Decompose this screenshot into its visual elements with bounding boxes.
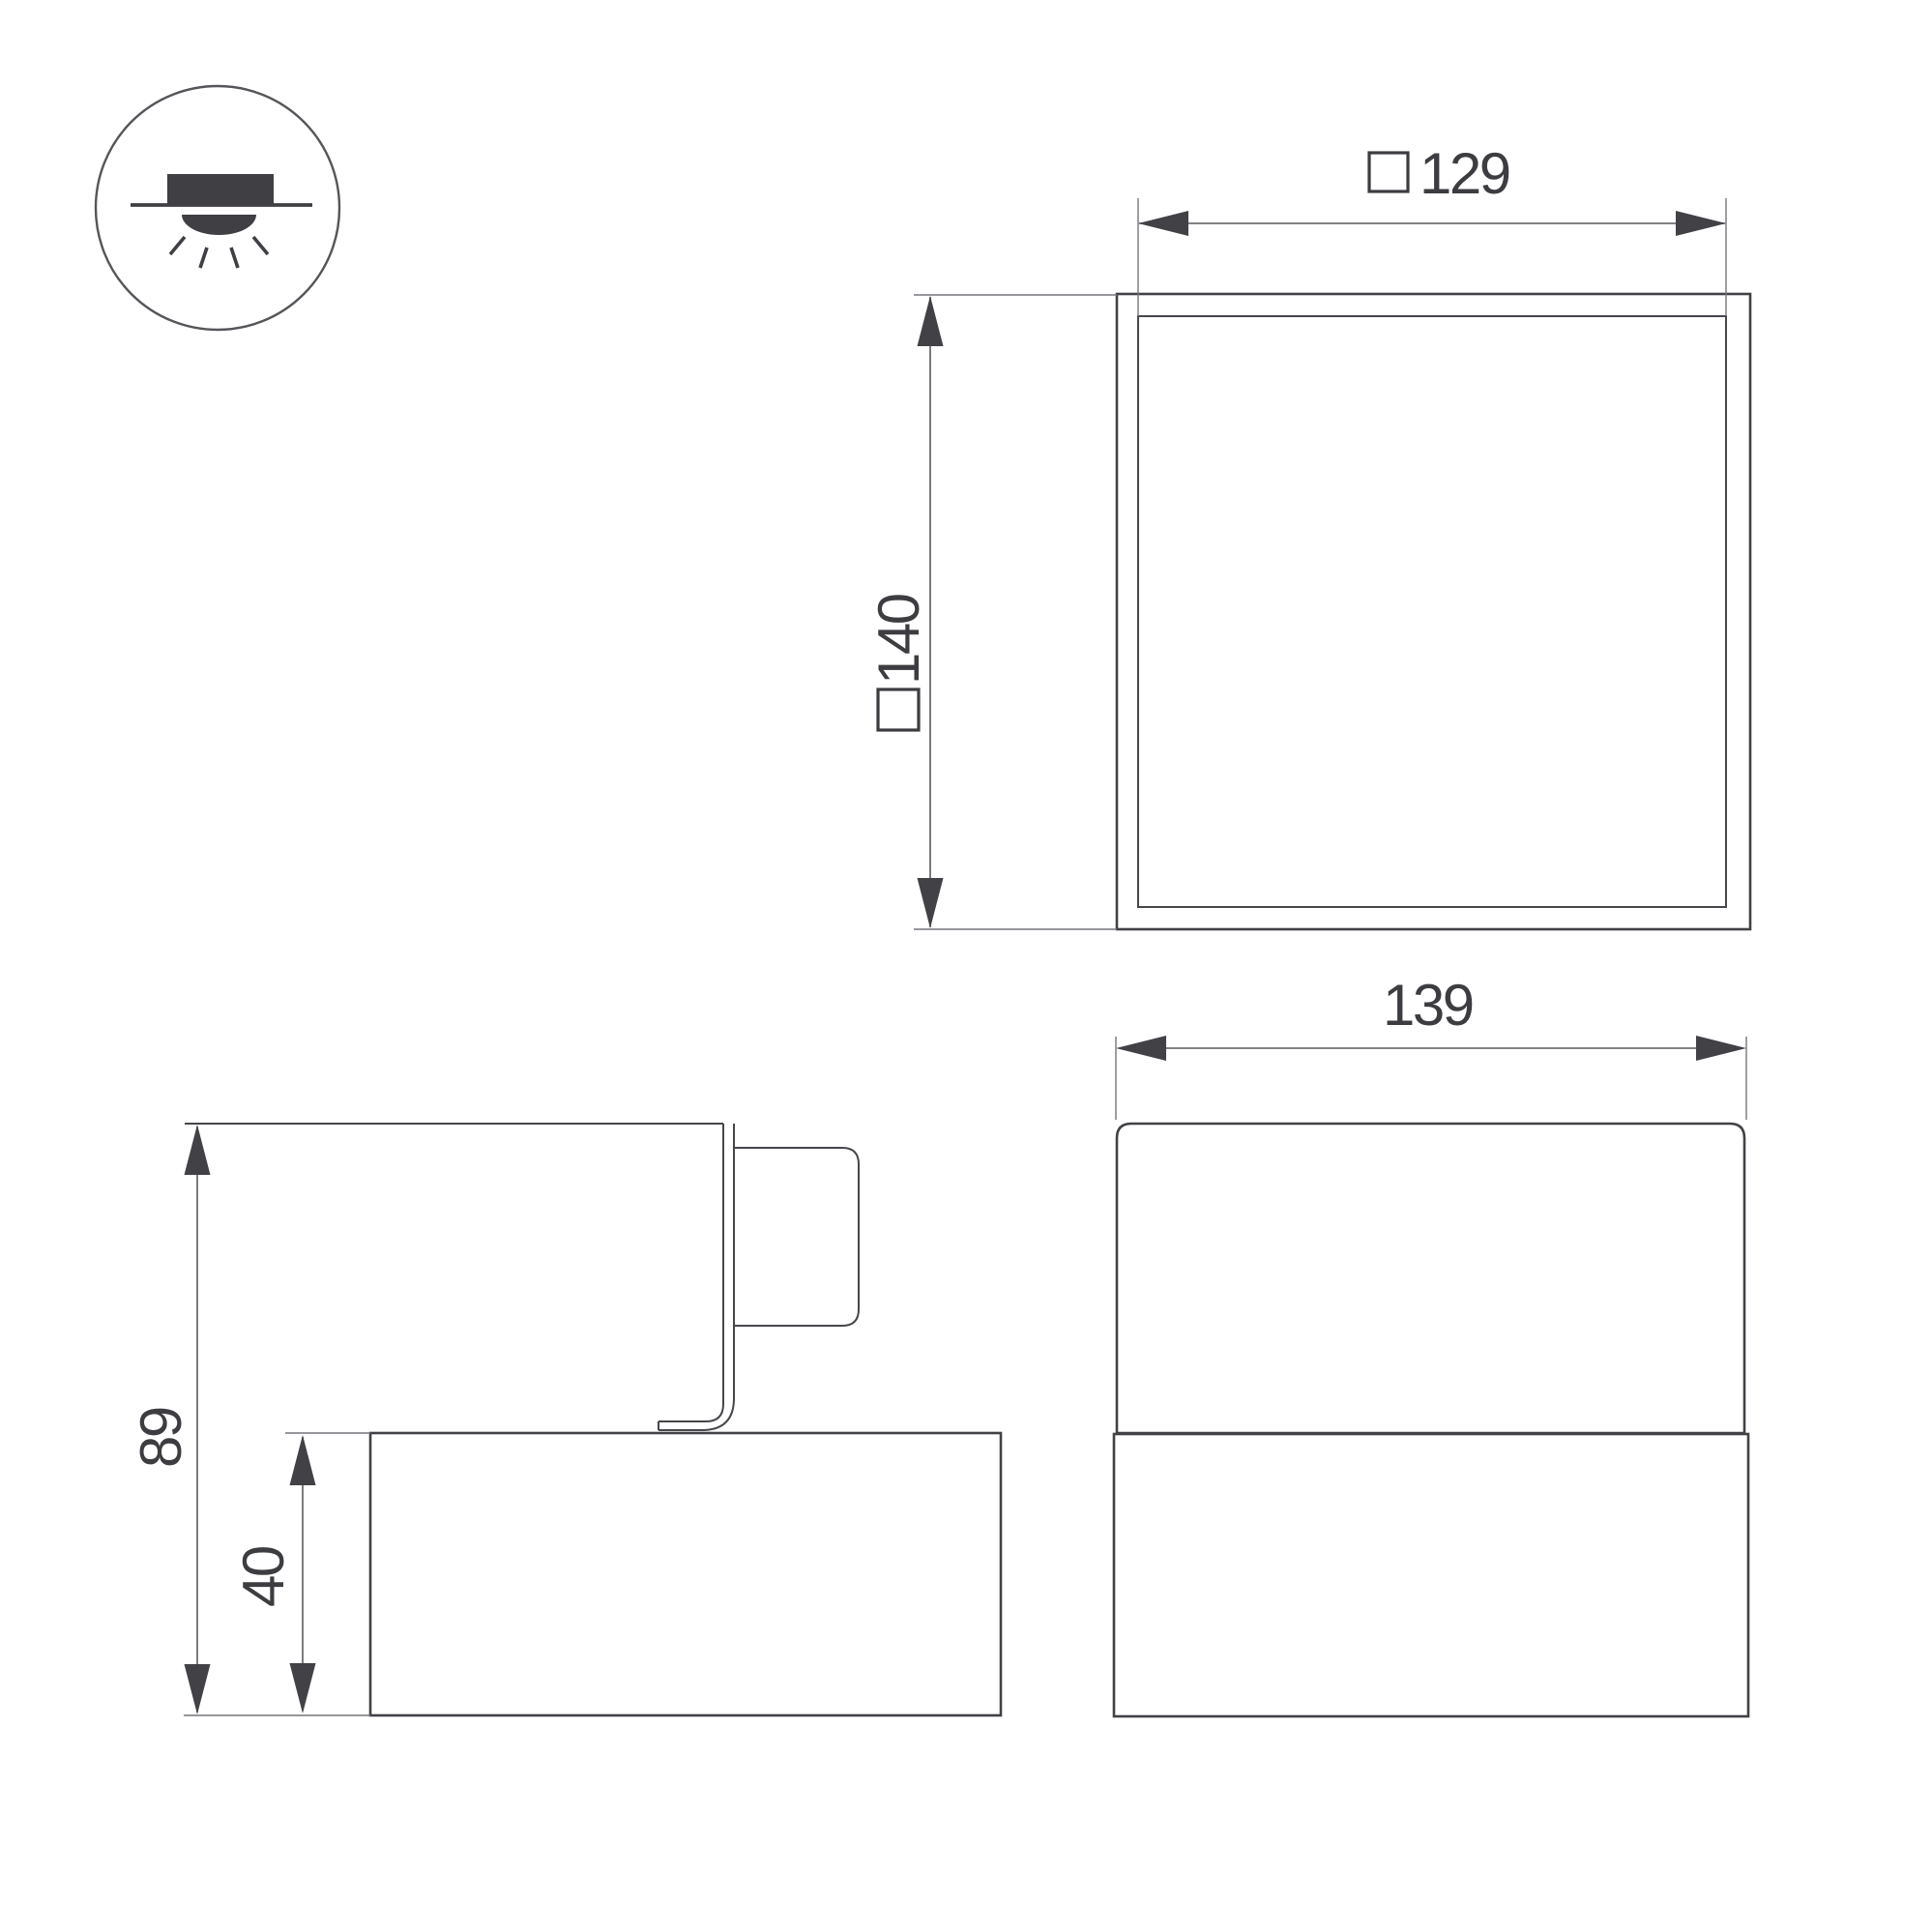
dimension-label-plan-body: 140	[866, 594, 931, 685]
icon-light-ray	[231, 248, 238, 268]
plan-view: 129 140	[866, 141, 1750, 929]
arrowhead-left	[1116, 1036, 1166, 1061]
arrowhead-up	[185, 1125, 211, 1175]
side-driver-box	[734, 1148, 859, 1326]
front-recessed-housing	[1114, 1434, 1748, 1716]
square-symbol-icon	[1369, 153, 1408, 191]
side-recessed-housing	[370, 1433, 1001, 1715]
dimension-plan-body: 140	[866, 295, 1117, 929]
icon-fixture-body	[167, 174, 274, 205]
dimension-label-plan-opening: 129	[1420, 141, 1509, 206]
technical-drawing-page: 129 140	[0, 0, 1932, 1932]
icon-circle-border	[96, 86, 339, 330]
arrowhead-down	[918, 878, 944, 928]
square-symbol-icon	[878, 689, 919, 730]
side-mounting-bracket	[659, 1124, 734, 1430]
plan-outer-body	[1117, 294, 1750, 929]
arrowhead-right	[1676, 211, 1726, 236]
dimension-label-side-recess-depth: 40	[231, 1546, 296, 1607]
dimension-side-total-height: 89	[129, 1125, 370, 1715]
front-head-body	[1117, 1124, 1744, 1433]
plan-inner-opening	[1138, 316, 1726, 907]
icon-light-dome	[182, 215, 256, 235]
icon-light-ray	[170, 237, 185, 254]
arrowhead-right	[1696, 1036, 1746, 1061]
dimension-plan-opening: 129	[1138, 141, 1726, 316]
dimension-label-side-total-height: 89	[129, 1408, 193, 1468]
icon-light-ray	[253, 237, 268, 254]
arrowhead-up	[290, 1435, 316, 1485]
icon-light-ray	[200, 248, 207, 268]
bracket-inner-edge	[659, 1124, 723, 1421]
arrowhead-left	[1138, 211, 1188, 236]
technical-drawing-canvas: 129 140	[0, 0, 1932, 1932]
arrowhead-down	[185, 1664, 211, 1714]
arrowhead-down	[290, 1663, 316, 1713]
dimension-side-recess-depth: 40	[231, 1433, 370, 1713]
arrowhead-up	[918, 296, 944, 346]
surface-mounted-ceiling-light-icon	[96, 86, 339, 330]
dimension-front-width: 139	[1116, 973, 1746, 1120]
dimension-label-front-width: 139	[1383, 973, 1473, 1038]
side-view: 89 40	[129, 1124, 1001, 1715]
front-view: 139	[1114, 973, 1748, 1716]
